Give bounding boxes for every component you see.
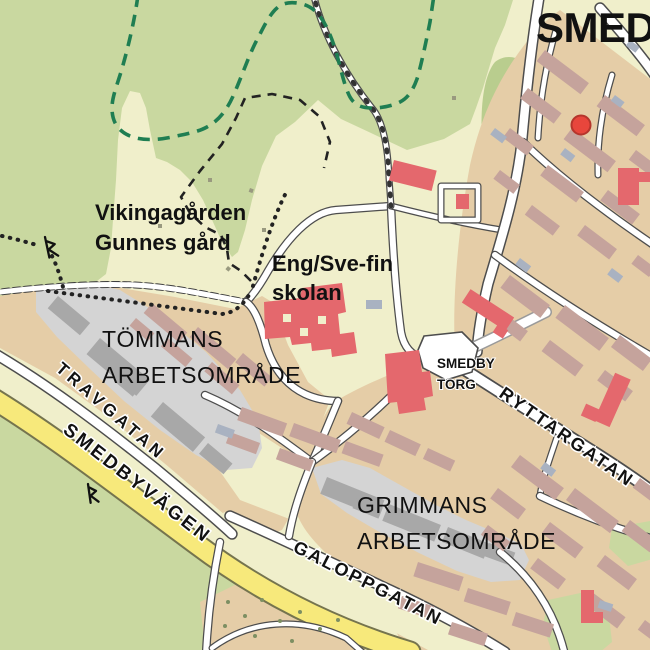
label-smedby-torg-2: TORG (437, 377, 476, 392)
label-school-1: Eng/Sve-fin (272, 251, 393, 276)
label-grimmans-1: GRIMMANS (357, 492, 488, 518)
label-school-2: skolan (272, 280, 342, 305)
label-tommans-2: ARBETSOMRÅDE (102, 361, 301, 388)
map-viewport[interactable]: SMEDBY Vikingagården Gunnes gård Eng/Sve… (0, 0, 650, 650)
label-tommans-1: TÖMMANS (102, 326, 223, 352)
map-canvas[interactable]: SMEDBY Vikingagården Gunnes gård Eng/Sve… (0, 0, 650, 650)
map-title: SMEDBY (536, 4, 650, 51)
location-marker[interactable] (572, 116, 591, 135)
label-grimmans-2: ARBETSOMRÅDE (357, 527, 556, 554)
label-vikingagarden-2: Gunnes gård (95, 230, 231, 255)
label-smedby-torg-1: SMEDBY (437, 356, 495, 371)
label-vikingagarden-1: Vikingagården (95, 200, 246, 225)
